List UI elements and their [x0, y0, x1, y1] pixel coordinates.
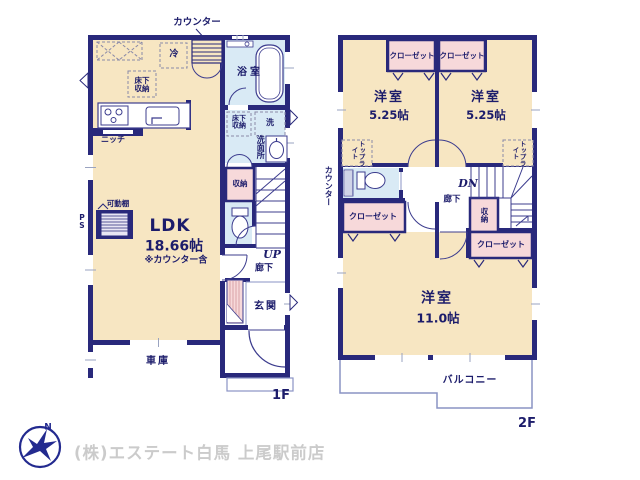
counter-label-2f: カウンター — [324, 166, 332, 206]
bird-icon — [22, 429, 57, 461]
closet-left-label: クローゼット — [349, 213, 397, 221]
ldk-note-label: ※カウンター含 — [145, 256, 208, 265]
floor1-label: 1F — [272, 389, 290, 403]
underfloor-storage-label-kitchen: 床下収納 — [134, 77, 150, 93]
bathroom-label: 浴室 — [237, 68, 263, 79]
floorplan-page: カウンター 冷 床下収納 ニッチ 浴室 床下収納 洗 洗面所 収納 可動棚 PS… — [0, 0, 640, 480]
balcony-label: バルコニー — [443, 376, 498, 387]
floor2-label: 2F — [518, 417, 536, 431]
vent-arrow-left — [80, 73, 88, 88]
bedroom-left-label: 洋室 — [374, 91, 404, 105]
storage1-label: 収納 — [233, 180, 248, 188]
laundry-label: 洗 — [266, 119, 274, 127]
hallway1-label: 廊下 — [255, 264, 273, 273]
washroom-label: 洗面所 — [256, 135, 264, 159]
garage-label: 車庫 — [146, 357, 170, 368]
vent-arrow-right-entrance — [290, 295, 298, 310]
hallway2-label: 廊下 — [443, 196, 460, 205]
skylight-left-label: トップライト — [350, 140, 364, 167]
stairs-1f — [256, 167, 285, 248]
closet-top-right-label: クローゼット — [440, 52, 485, 60]
bedroom-right-label: 洋室 — [471, 91, 501, 105]
bedroom-main-size: 11.0帖 — [416, 311, 459, 324]
bedroom-right-size: 5.25帖 — [466, 109, 506, 121]
entrance-label: 玄関 — [254, 302, 278, 313]
pipe-space-label: PS — [78, 214, 86, 230]
closet-top-left-label: クローゼット — [390, 52, 435, 60]
ldk-label: LDK — [149, 218, 190, 236]
ldk-hall-door — [220, 255, 247, 281]
floor2-plan — [337, 35, 540, 408]
vent-arrow-right-wash — [290, 110, 298, 125]
bedroom-left-size: 5.25帖 — [369, 109, 409, 121]
niche-label: ニッチ — [101, 136, 125, 144]
toilet2-icon — [365, 173, 385, 189]
ldk-size-label: 18.66帖 — [145, 240, 203, 255]
front-door-arc — [249, 331, 285, 367]
storage2-label: 収納 — [480, 208, 488, 223]
logo-north-letter: N — [44, 423, 52, 432]
movable-shelf-label: 可動棚 — [107, 200, 130, 208]
underfloor-storage-label-wash: 床下収納 — [231, 116, 246, 131]
closet-bottom-right-label: クローゼット — [477, 241, 525, 249]
floorplan-drawing — [0, 0, 640, 480]
stairs-dn-label: DN — [458, 178, 478, 190]
floor1-plan — [80, 29, 298, 391]
company-logo — [20, 427, 60, 467]
company-name: (株)エステート白馬 上尾駅前店 — [74, 444, 325, 461]
bedroom-main-label: 洋室 — [421, 292, 453, 307]
counter-label-1f: カウンター — [173, 18, 221, 28]
balcony-outline — [340, 360, 532, 408]
stairs-up-label: UP — [263, 249, 281, 261]
skylight-right-label: トップライト — [511, 140, 525, 167]
fridge-label: 冷 — [169, 50, 178, 59]
